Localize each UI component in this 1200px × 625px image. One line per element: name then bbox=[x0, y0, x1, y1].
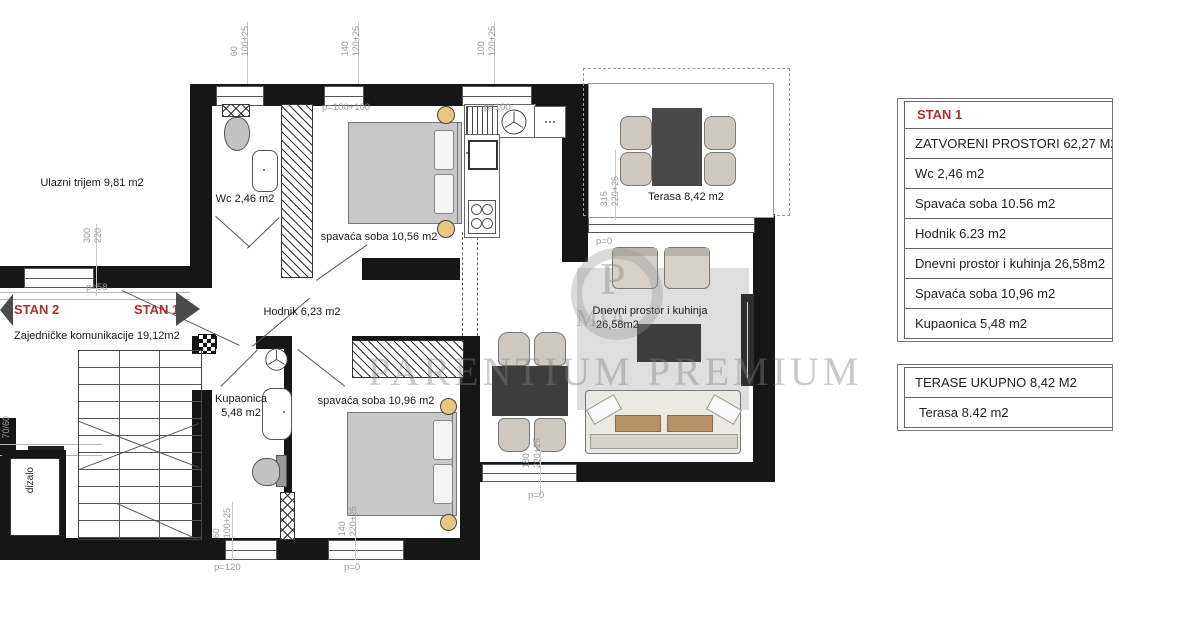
chair-back bbox=[613, 248, 657, 256]
burner bbox=[482, 204, 493, 215]
bed-headboard bbox=[457, 123, 458, 223]
stove-icon bbox=[468, 200, 496, 234]
table-title: STAN 1 bbox=[904, 101, 1112, 129]
table-row: ZATVORENI PROSTORI 62,27 M2 bbox=[904, 128, 1112, 159]
sofa-cushion-tan bbox=[615, 415, 661, 432]
door-line bbox=[297, 349, 345, 387]
dimension-label: 140220+25 bbox=[338, 506, 358, 536]
armchair bbox=[664, 247, 710, 289]
table-row: Wc 2,46 m2 bbox=[904, 158, 1112, 189]
door-line bbox=[221, 349, 258, 386]
bed-pillow bbox=[434, 174, 454, 214]
bed-pillow bbox=[433, 464, 453, 504]
terrace-sliding-door bbox=[588, 216, 755, 233]
dimension-label: 300220 bbox=[83, 228, 103, 243]
sofa-cushion-tan bbox=[667, 415, 713, 432]
room-label-spavaca-soba-1: spavaća soba 10,56 m2 bbox=[318, 230, 440, 244]
door-line bbox=[215, 216, 250, 248]
window-bottom-2 bbox=[328, 540, 404, 560]
dim-guide bbox=[232, 502, 233, 560]
fridge-dot bbox=[545, 121, 547, 123]
dimension-label: 60100+25 bbox=[230, 26, 250, 56]
sill-height-label: p=0 bbox=[344, 562, 360, 573]
stan1-arrow-icon bbox=[176, 292, 200, 326]
dining-chair bbox=[534, 332, 566, 366]
stair-direction-line bbox=[79, 423, 199, 470]
dining-table bbox=[492, 366, 568, 416]
room-label-wc: Wc 2,46 m2 bbox=[213, 192, 277, 206]
shaft-icon bbox=[280, 492, 295, 540]
room-label-dnevni: Dnevni prostor i kuhinja 26,58m2 bbox=[588, 304, 712, 333]
wall-wc-left bbox=[190, 84, 212, 288]
dashed-opening-2 bbox=[477, 232, 478, 336]
stan2-arrow-icon bbox=[0, 294, 13, 326]
dashed-opening-1 bbox=[462, 232, 463, 336]
area-table-terase: TERASE UKUPNO 8,42 M2 Terasa 8.42 m2 bbox=[897, 364, 1113, 431]
stan2-label: STAN 2 bbox=[14, 302, 59, 317]
bed-pillow bbox=[433, 420, 453, 460]
burner bbox=[471, 218, 482, 229]
room-label-ulazni-trijem: Ulazni trijem 9,81 m2 bbox=[33, 176, 151, 190]
sill-height-label: p=0 bbox=[596, 236, 612, 247]
room-label-terasa: Terasa 8,42 m2 bbox=[640, 190, 732, 204]
stair-divider bbox=[119, 351, 120, 539]
table-row: Spavaća soba 10.56 m2 bbox=[904, 188, 1112, 219]
dimension-label: 100120+25 bbox=[477, 26, 497, 56]
room-label-kupaonica: Kupaonica 5,48 m2 bbox=[210, 392, 272, 421]
burner bbox=[471, 204, 482, 215]
wall-top bbox=[212, 84, 592, 106]
toilet-icon bbox=[252, 458, 280, 486]
window-top-1 bbox=[216, 86, 264, 106]
fridge-dot bbox=[549, 121, 551, 123]
fridge-icon bbox=[534, 106, 566, 138]
floor-plan-page: dizalo bbox=[0, 0, 1200, 625]
table-row: Dnevni prostor i kuhinja 26,58m2 bbox=[904, 248, 1112, 279]
nightstand-lamp bbox=[440, 398, 457, 415]
stair-divider bbox=[159, 351, 160, 539]
sofa bbox=[585, 390, 741, 454]
lift-label: dizalo bbox=[25, 467, 36, 493]
bed-pillow bbox=[434, 130, 454, 170]
room-label-zajednicke: Zajedničke komunikacije 19,12m2 bbox=[14, 329, 182, 343]
sofa-seat bbox=[590, 434, 738, 449]
room-label-line: Kupaonica bbox=[210, 392, 272, 406]
toilet-icon bbox=[224, 117, 250, 151]
fridge-dot bbox=[553, 121, 555, 123]
sill-height-label: p=100 bbox=[484, 102, 511, 113]
room-label-line: 5,48 m2 bbox=[210, 406, 272, 420]
wall-living-right bbox=[753, 214, 775, 482]
table-row: Terasa 8.42 m2 bbox=[904, 397, 1112, 428]
table-row: Spavaća soba 10,96 m2 bbox=[904, 278, 1112, 309]
table-title: TERASE UKUPNO 8,42 M2 bbox=[904, 367, 1112, 398]
nightstand-lamp bbox=[437, 106, 455, 124]
sill-height-label: p=100+100 bbox=[322, 102, 370, 113]
faucet-dot bbox=[283, 411, 285, 413]
terrace-table bbox=[652, 108, 702, 186]
dimension-label: 60100+25 bbox=[212, 508, 232, 538]
window-trijem bbox=[24, 268, 94, 288]
terrace-chair bbox=[620, 152, 652, 186]
room-label-line: 26,58m2 bbox=[588, 318, 712, 332]
lift-car: dizalo bbox=[10, 458, 60, 536]
sill-height-label: p=0 bbox=[528, 490, 544, 501]
washbasin-icon bbox=[252, 150, 278, 192]
room-label-line: Dnevni prostor i kuhinja bbox=[588, 304, 712, 318]
area-table-stan1: STAN 1 ZATVORENI PROSTORI 62,27 M2 Wc 2,… bbox=[897, 98, 1113, 342]
sill-trijem bbox=[0, 292, 190, 300]
faucet-dot bbox=[466, 152, 468, 154]
door-line bbox=[247, 217, 279, 248]
dimension-label: 315220+25 bbox=[600, 176, 620, 206]
wc-cistern bbox=[222, 104, 250, 117]
terrace-chair bbox=[620, 116, 652, 150]
door-line bbox=[316, 244, 367, 280]
terrace-chair bbox=[704, 152, 736, 186]
stair-direction-line bbox=[117, 503, 196, 539]
table-row: Kupaonica 5,48 m2 bbox=[904, 308, 1112, 339]
wall-bed1-bottom bbox=[362, 258, 460, 280]
wardrobe-bedroom1 bbox=[281, 104, 313, 278]
staircase bbox=[78, 350, 202, 540]
burner bbox=[482, 218, 493, 229]
tv-screen-line bbox=[747, 302, 748, 378]
stair-direction-line bbox=[79, 421, 199, 468]
stan1-label: STAN 1 bbox=[134, 302, 179, 317]
sink-icon bbox=[468, 140, 498, 170]
tv-unit bbox=[741, 294, 754, 386]
room-label-hodnik: Hodnik 6,23 m2 bbox=[260, 305, 344, 319]
chair-back bbox=[665, 248, 709, 256]
room-label-spavaca-soba-2: spavaća soba 10,96 m2 bbox=[314, 394, 438, 408]
nightstand-lamp bbox=[440, 514, 457, 531]
dimension-label: 180220+25 bbox=[522, 438, 542, 468]
sill-height-label: p=120 bbox=[214, 562, 241, 573]
dimension-label: 140120+25 bbox=[341, 26, 361, 56]
terrace-chair bbox=[704, 116, 736, 150]
dimension-label: 70/60 bbox=[2, 416, 11, 439]
table-row: Hodnik 6.23 m2 bbox=[904, 218, 1112, 249]
dining-chair bbox=[498, 332, 530, 366]
sill-height-label: p=58 bbox=[86, 282, 107, 293]
wardrobe-bedroom2 bbox=[352, 340, 464, 378]
faucet-dot bbox=[263, 169, 265, 171]
armchair bbox=[612, 247, 658, 289]
fan-icon bbox=[264, 347, 289, 372]
